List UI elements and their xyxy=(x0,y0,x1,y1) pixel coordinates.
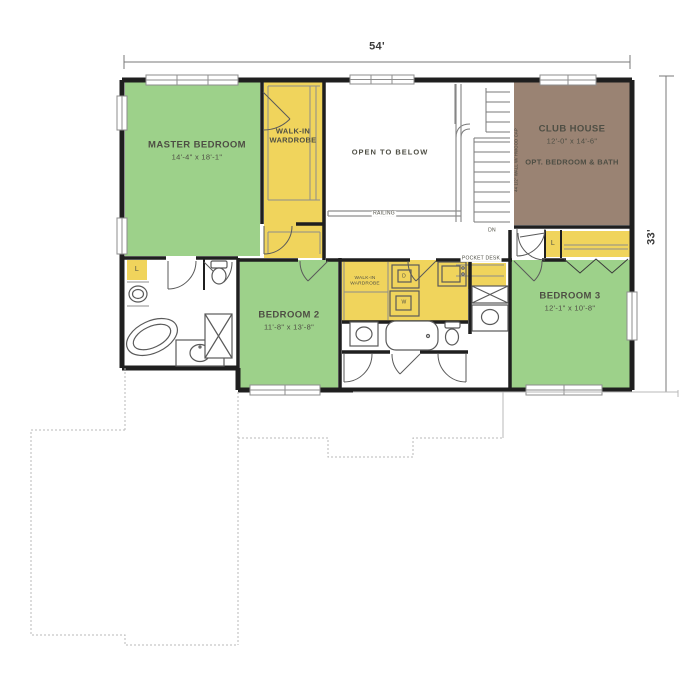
staircase xyxy=(455,84,510,222)
master-bedroom-label: MASTER BEDROOM xyxy=(148,141,246,152)
half-wall-note: 44 1/2" WALL W/ HWOOD CAP xyxy=(515,128,520,192)
bedroom-3-area xyxy=(510,260,630,388)
stairs-down-label: DN xyxy=(488,228,496,234)
bedroom-3-size: 12'-1" x 10'-8" xyxy=(545,305,596,314)
pocket-desk-label: POCKET DESK xyxy=(460,256,501,262)
floor-plan: 54' 33' MASTER BEDROOM 14'-4" x 18'-1" W… xyxy=(0,0,700,700)
club-house-size: 12'-0" x 14'-6" xyxy=(547,138,598,147)
railing-label: RAILING xyxy=(372,211,397,217)
linen-label-bath: L xyxy=(135,266,139,274)
bedroom-3-wardrobe-area xyxy=(562,231,630,257)
bedroom-3-label: BEDROOM 3 xyxy=(539,292,600,303)
open-to-below-label: OPEN TO BELOW xyxy=(352,149,429,158)
club-house-area xyxy=(514,82,630,225)
master-wardrobe-label: WALK-IN WARDROBE xyxy=(267,127,319,144)
floor-plan-drawing xyxy=(0,0,700,700)
bedroom-2-label: BEDROOM 2 xyxy=(258,311,319,322)
linen-label-hall: L xyxy=(551,240,555,248)
club-house-note: OPT. BEDROOM & BATH xyxy=(525,159,618,168)
overall-width-dimension: 54' xyxy=(369,41,385,54)
hall-wardrobe-label: WALK-IN WARDROBE xyxy=(349,276,380,287)
master-bedroom-size: 14'-4" x 18'-1" xyxy=(172,154,223,163)
dryer-label: D xyxy=(402,274,406,280)
lower-floor-outline xyxy=(31,368,678,645)
washer-label: W xyxy=(402,300,407,306)
overall-depth-dimension: 33' xyxy=(646,229,659,245)
club-house-label: CLUB HOUSE xyxy=(539,125,606,136)
bedroom-2-size: 11'-8" x 13'-8" xyxy=(264,324,314,333)
master-bedroom-area xyxy=(125,82,260,256)
